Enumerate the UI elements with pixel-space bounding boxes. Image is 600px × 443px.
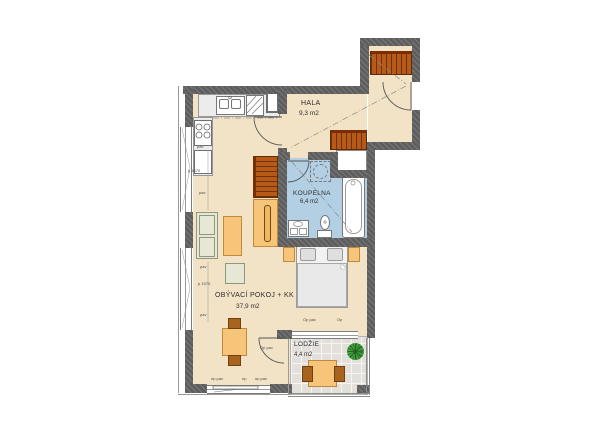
- annotation-np-mid: np: [242, 377, 246, 381]
- bed-pillow-left: [300, 248, 316, 261]
- loggia-rail-left: [288, 339, 289, 393]
- annotation-op-pav-top: Op pav: [303, 318, 316, 322]
- annotation-op-top: Op: [337, 318, 342, 322]
- side-table: [225, 263, 245, 284]
- facade-line-bottom: [178, 394, 292, 395]
- sink-basin-left: [219, 99, 229, 109]
- facade-line-left: [178, 86, 179, 393]
- wall-loggia-stub: [277, 330, 292, 339]
- toilet-tank: [317, 230, 332, 238]
- wall-bathroom-left: [278, 148, 287, 247]
- stove: [194, 120, 212, 146]
- vanity-drawer-right: [299, 228, 307, 235]
- toilet-bowl: [320, 215, 330, 230]
- room-label-koupelna: KOUPELNA: [293, 190, 331, 197]
- room-label-obyvaci: OBÝVACÍ POKOJ + KK: [215, 292, 294, 299]
- room-label-hala: HALA: [301, 100, 321, 107]
- room-area-lodzie: 4,4 m2: [294, 352, 312, 358]
- annotation-p1570-top: p 1570: [188, 169, 200, 173]
- wardrobe-hall: [330, 130, 367, 150]
- room-area-koupelna: 6,4 m2: [300, 199, 318, 205]
- wall-ext-left: [360, 38, 369, 94]
- wall-ext-top: [360, 38, 420, 46]
- loggia-rail-right: [366, 338, 370, 395]
- wardrobe-living: [253, 156, 278, 198]
- vanity-drawer-left: [290, 228, 298, 235]
- annotation-np-pav-right: np pav: [255, 377, 267, 381]
- wall-left-pier-top: [185, 86, 193, 127]
- loggia-chair-right: [334, 366, 345, 382]
- kitchen-drainer: [246, 95, 264, 116]
- loggia-chair-left: [302, 366, 313, 382]
- wall-bottom-left: [185, 384, 207, 393]
- wall-ext-right-upper: [412, 38, 420, 82]
- nightstand-right: [348, 247, 360, 262]
- sofa-cushion-bottom: [199, 237, 215, 257]
- annotation-np-pav-left: np pav: [211, 377, 223, 381]
- annotation-pav-window2a: pav: [200, 265, 206, 269]
- wall-bathroom-bottom: [278, 238, 375, 247]
- utility-niche: [336, 150, 367, 172]
- wall-hall-stub: [278, 86, 287, 114]
- wall-left-pier-bottom: [185, 330, 193, 392]
- floor-plan: HALA 9,3 m2 KOUPELNA 6,4 m2 OBÝVACÍ POKO…: [0, 0, 600, 443]
- window-left-lower: [180, 248, 192, 330]
- plant-icon: [347, 343, 364, 360]
- coffee-table: [223, 216, 242, 256]
- wardrobe-entry: [370, 51, 412, 75]
- room-label-lodzie: LODŽIE: [294, 341, 319, 348]
- nightstand-left: [283, 247, 295, 262]
- annotation-pav-window2b: pav: [200, 313, 206, 317]
- shower-drain-circle: [313, 164, 328, 179]
- wall-top-main: [183, 86, 363, 94]
- window-loggia-door: [292, 331, 358, 339]
- sofa-cushion-top: [199, 215, 215, 235]
- loggia-rail-bottom: [288, 393, 370, 397]
- wall-bathroom-top-left: [278, 152, 290, 160]
- room-area-hala: 9,3 m2: [299, 110, 319, 117]
- bed-blanket: [297, 263, 347, 307]
- bed-pillow-right: [327, 248, 343, 261]
- room-area-obyvaci: 37,9 m2: [236, 303, 260, 310]
- window-bottom: [207, 385, 270, 394]
- annotation-p1570-bottom: p 1570: [198, 282, 210, 286]
- sink-basin-right: [231, 99, 241, 109]
- annotation-pav-kitchen: pav: [197, 145, 203, 149]
- bathtub-inner: [345, 179, 362, 234]
- annotation-op-pav-side: Op pav: [260, 346, 273, 350]
- wall-niche-bottom: [336, 170, 367, 178]
- annotation-pav-window1: pav: [199, 191, 205, 195]
- wall-left-pier-mid: [185, 212, 193, 248]
- tv: [264, 205, 271, 242]
- dining-chair-top: [228, 318, 241, 329]
- dining-table: [222, 328, 247, 356]
- dining-chair-bottom: [228, 355, 241, 366]
